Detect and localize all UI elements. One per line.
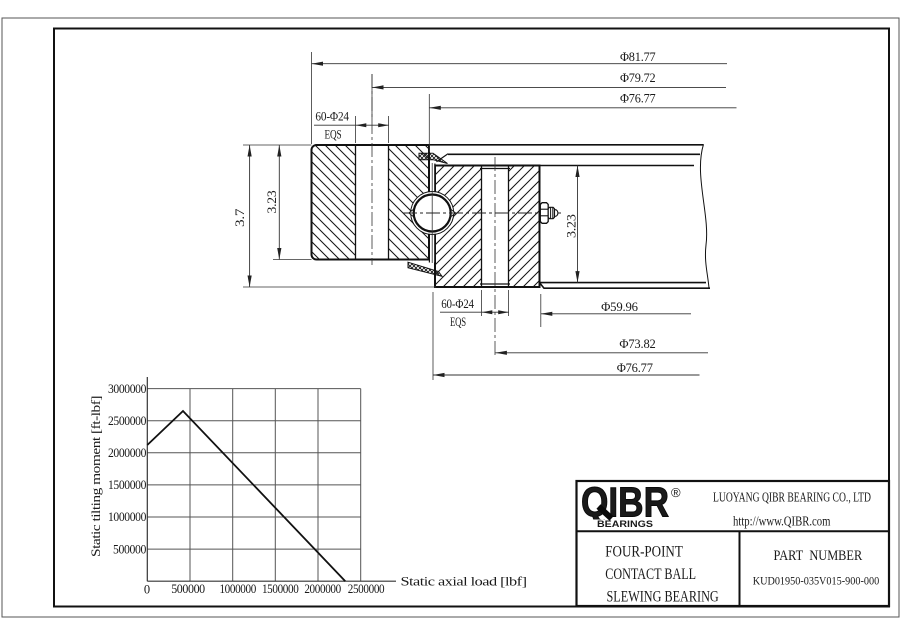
svg-text:KUD01950-035V015-900-000: KUD01950-035V015-900-000 [753, 574, 880, 588]
svg-text:1000000: 1000000 [108, 510, 146, 524]
svg-text:1000000: 1000000 [219, 582, 256, 596]
svg-text:Φ76.77: Φ76.77 [620, 91, 656, 106]
svg-text:CONTACT BALL: CONTACT BALL [605, 566, 696, 583]
svg-text:3.23: 3.23 [264, 191, 279, 214]
svg-text:2000000: 2000000 [108, 446, 146, 460]
svg-text:2000000: 2000000 [304, 582, 341, 596]
svg-text:Φ73.82: Φ73.82 [619, 336, 655, 351]
svg-text:®: ® [671, 485, 681, 500]
svg-text:FOUR-POINT: FOUR-POINT [605, 543, 683, 560]
svg-text:1500000: 1500000 [262, 582, 299, 596]
svg-text:EQS: EQS [450, 314, 466, 329]
svg-text:http://www.QIBR.com: http://www.QIBR.com [733, 514, 831, 529]
svg-text:Static tilting moment [ft-lbf]: Static tilting moment [ft-lbf] [89, 396, 103, 557]
svg-text:3.7: 3.7 [232, 208, 247, 227]
svg-text:Static axial load [lbf]: Static axial load [lbf] [401, 575, 527, 589]
svg-text:500000: 500000 [113, 542, 146, 556]
svg-text:Φ81.77: Φ81.77 [620, 49, 656, 64]
svg-text:EQS: EQS [325, 127, 342, 142]
svg-text:LUOYANG QIBR BEARING CO., LTD: LUOYANG QIBR BEARING CO., LTD [713, 490, 871, 505]
svg-text:2500000: 2500000 [348, 582, 385, 596]
svg-text:1500000: 1500000 [108, 478, 146, 492]
svg-text:60-Φ24: 60-Φ24 [315, 109, 349, 124]
svg-text:Φ76.77: Φ76.77 [617, 360, 654, 375]
svg-text:500000: 500000 [171, 582, 205, 596]
svg-text:BEARINGS: BEARINGS [597, 519, 653, 530]
svg-text:2500000: 2500000 [108, 414, 146, 428]
svg-text:3.23: 3.23 [564, 214, 579, 238]
svg-text:SLEWING BEARING: SLEWING BEARING [607, 589, 720, 606]
svg-text:0: 0 [144, 583, 150, 597]
svg-text:Φ79.72: Φ79.72 [620, 70, 656, 85]
svg-text:3000000: 3000000 [108, 382, 146, 396]
svg-text:PART NUMBER: PART NUMBER [774, 548, 863, 564]
svg-text:Φ59.96: Φ59.96 [601, 299, 638, 314]
svg-text:60-Φ24: 60-Φ24 [441, 296, 474, 311]
